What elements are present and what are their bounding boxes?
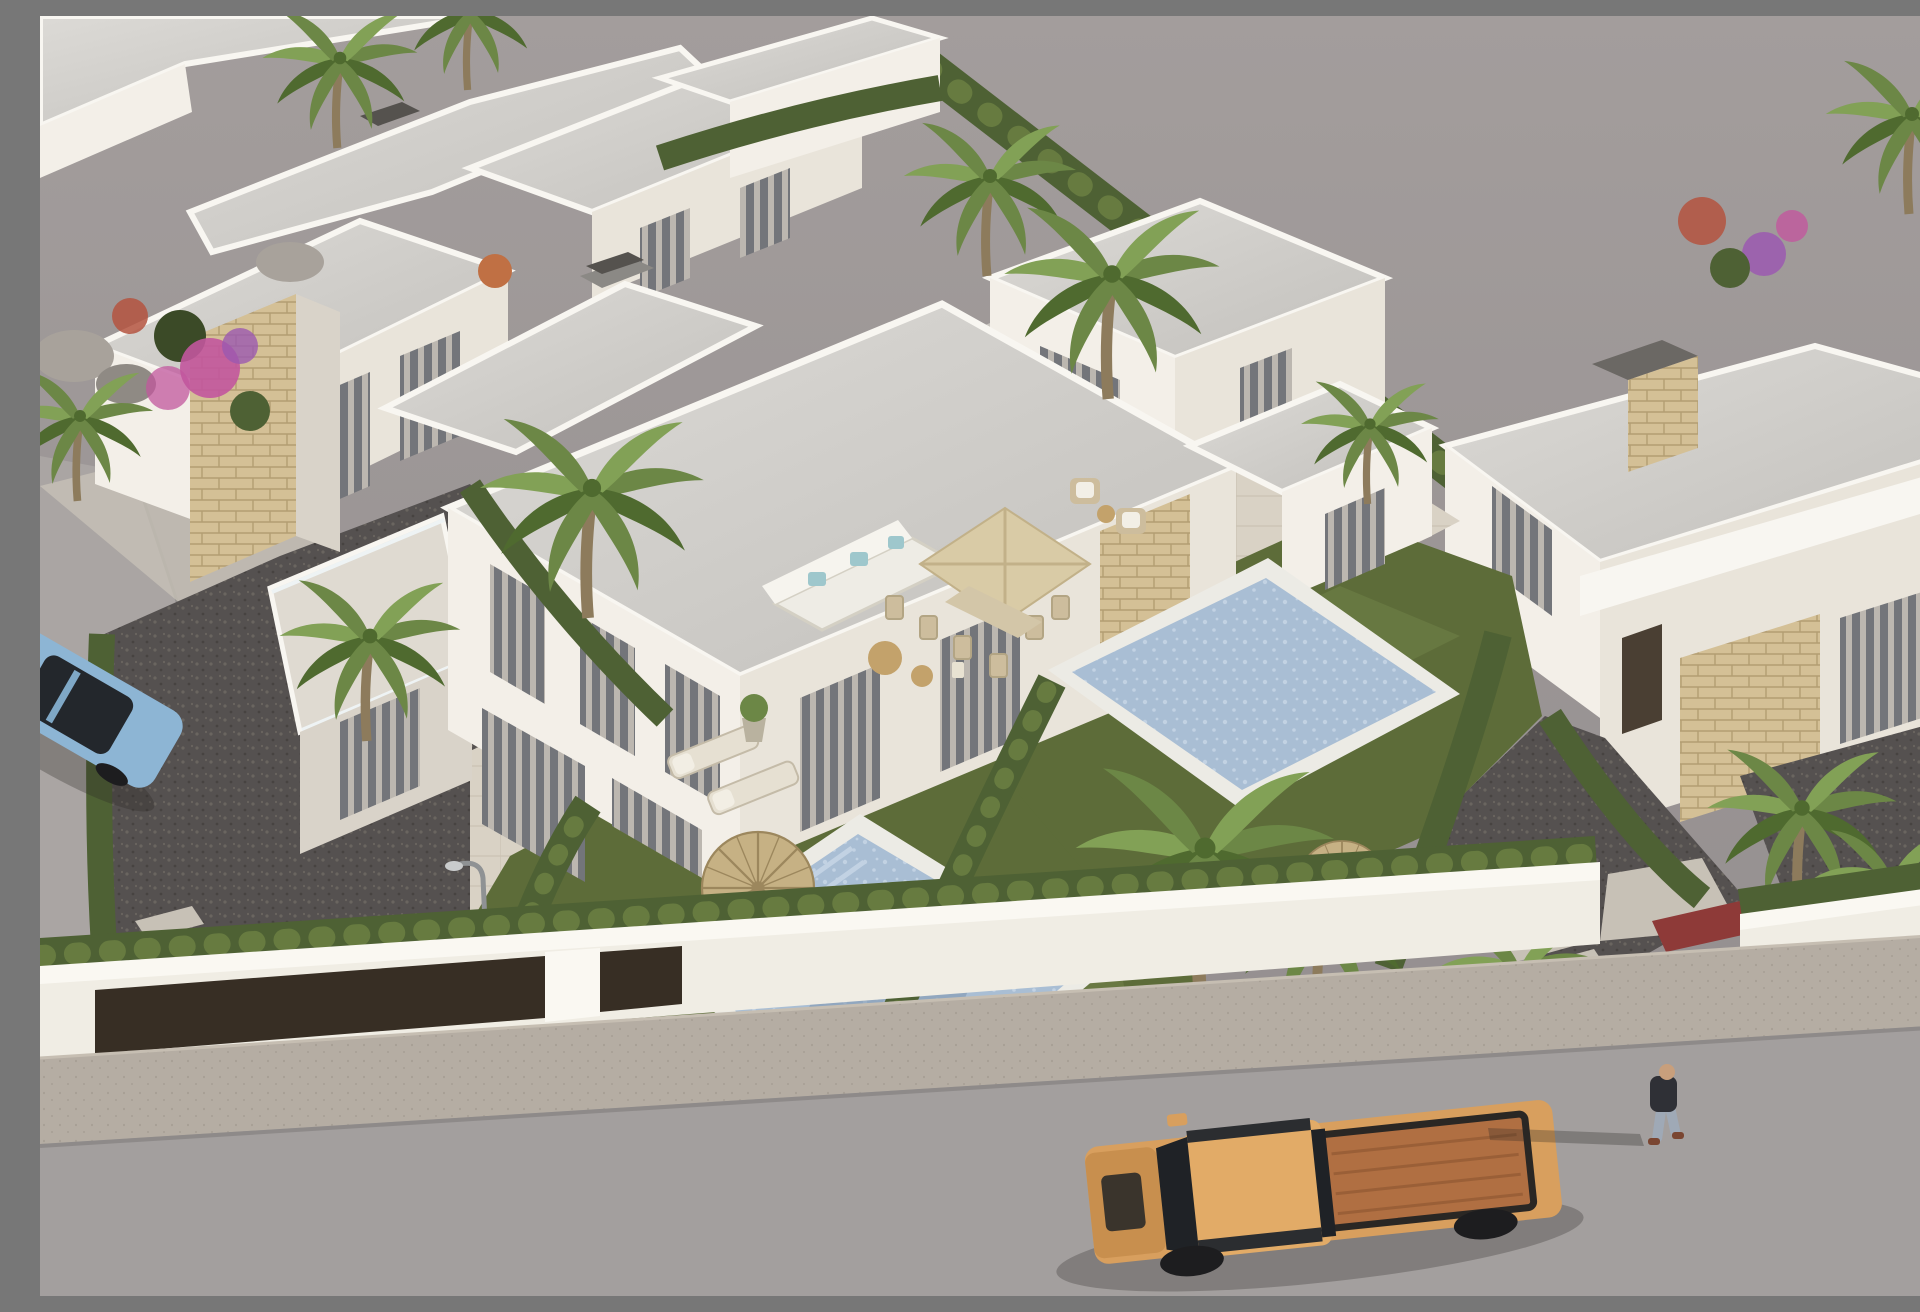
man-shoe-1 bbox=[1648, 1138, 1660, 1145]
lantern bbox=[952, 662, 964, 678]
pedestrian-gate bbox=[600, 946, 682, 1012]
man-torso bbox=[1650, 1076, 1677, 1112]
render-image bbox=[40, 16, 1920, 1296]
armchair-cushion-1 bbox=[1076, 482, 1094, 498]
man-shoe-2 bbox=[1672, 1132, 1684, 1139]
teal-pillow-1 bbox=[808, 572, 826, 586]
teal-pillow-2 bbox=[850, 552, 868, 566]
coffee-table-large bbox=[868, 641, 902, 675]
plant-foliage bbox=[740, 694, 768, 722]
truck-mirror bbox=[1167, 1113, 1188, 1127]
right-villa-door bbox=[1622, 624, 1662, 734]
man-head bbox=[1659, 1064, 1675, 1080]
right-villa-window bbox=[1840, 592, 1920, 744]
coffee-table-small bbox=[911, 665, 933, 687]
gate-pillar bbox=[545, 948, 600, 1022]
teal-pillow-3 bbox=[888, 536, 904, 549]
rock-3 bbox=[256, 242, 324, 282]
stone-pillar-side bbox=[296, 294, 340, 552]
orange-umbrella-back bbox=[478, 254, 512, 288]
side-table bbox=[1097, 505, 1115, 523]
truck-hood-vent bbox=[1101, 1172, 1147, 1232]
armchair-cushion-2 bbox=[1122, 512, 1140, 528]
lamp-head bbox=[445, 861, 463, 871]
